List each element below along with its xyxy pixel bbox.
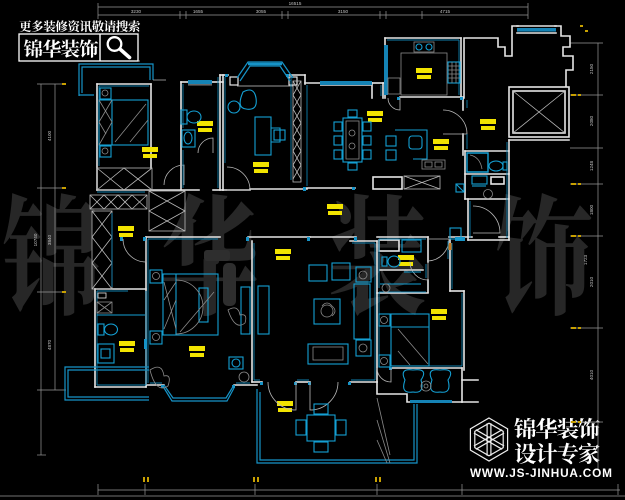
svg-text:4100: 4100 xyxy=(47,130,52,141)
svg-text:2080: 2080 xyxy=(589,115,594,126)
svg-text:1800: 1800 xyxy=(589,204,594,215)
svg-text:3840: 3840 xyxy=(47,234,52,245)
svg-text:1248: 1248 xyxy=(589,160,594,171)
svg-text:1655: 1655 xyxy=(193,9,204,14)
svg-text:3150: 3150 xyxy=(338,9,349,14)
svg-text:2010: 2010 xyxy=(589,276,594,287)
svg-text:3055: 3055 xyxy=(256,9,267,14)
svg-text:16515: 16515 xyxy=(289,1,302,6)
svg-text:4715: 4715 xyxy=(440,9,451,14)
svg-text:10740: 10740 xyxy=(33,233,38,246)
svg-text:WWW.JS-JINHUA.COM: WWW.JS-JINHUA.COM xyxy=(470,466,613,480)
svg-text:4010: 4010 xyxy=(589,369,594,380)
svg-text:2150: 2150 xyxy=(589,63,594,74)
svg-text:4870: 4870 xyxy=(47,339,52,350)
svg-text:3230: 3230 xyxy=(131,9,142,14)
svg-text:1723: 1723 xyxy=(583,254,588,265)
